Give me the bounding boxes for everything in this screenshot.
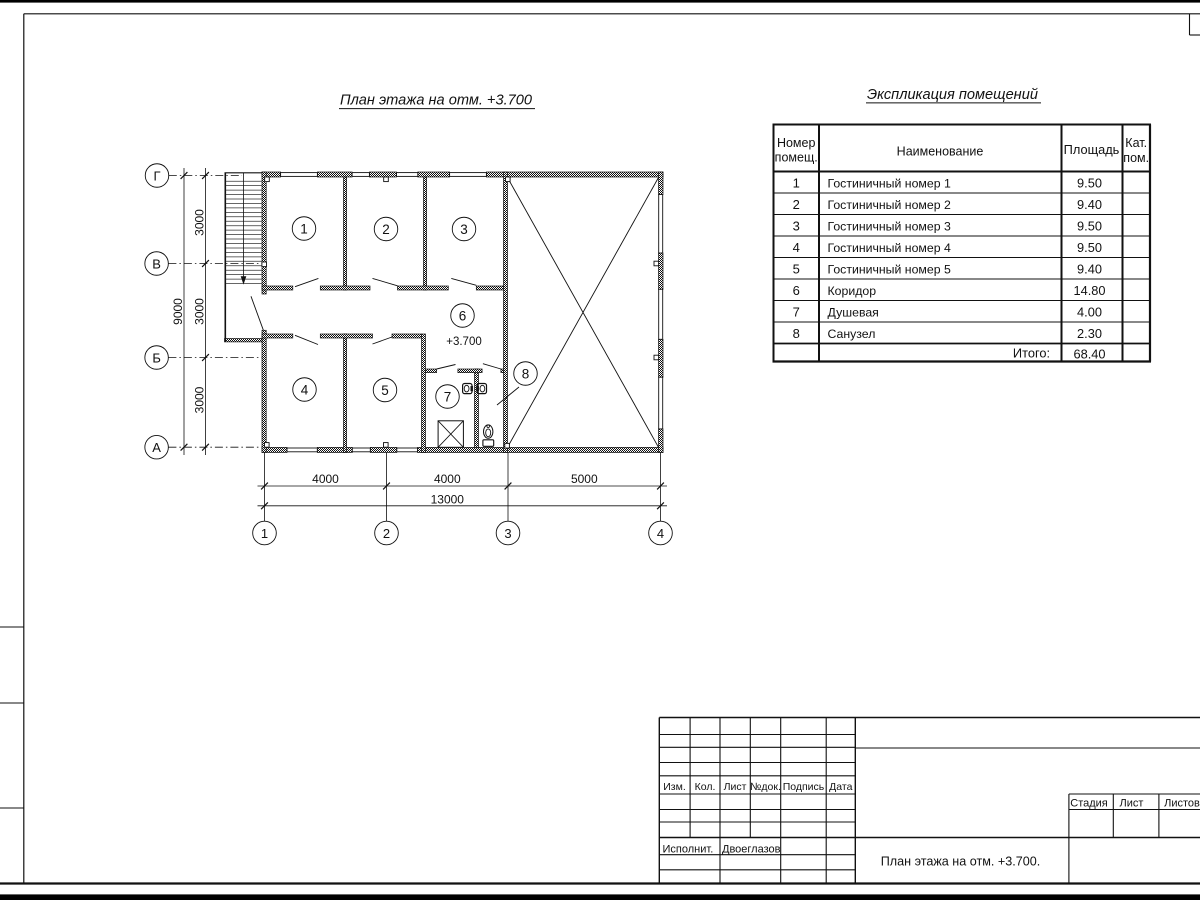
svg-text:Наименование: Наименование xyxy=(897,145,984,159)
svg-text:6: 6 xyxy=(459,308,467,323)
svg-text:Кат.: Кат. xyxy=(1125,136,1147,150)
svg-text:Стадия: Стадия xyxy=(1070,798,1108,810)
svg-text:4: 4 xyxy=(657,526,664,541)
svg-text:5: 5 xyxy=(381,383,389,398)
svg-text:№док.: №док. xyxy=(750,781,781,793)
svg-text:Экспликация помещений: Экспликация помещений xyxy=(867,87,1038,103)
svg-text:9.50: 9.50 xyxy=(1077,219,1102,234)
svg-text:4000: 4000 xyxy=(312,472,339,486)
svg-text:68.40: 68.40 xyxy=(1073,347,1105,362)
svg-text:Дата: Дата xyxy=(829,781,852,793)
svg-text:Исполнит.: Исполнит. xyxy=(663,844,714,856)
svg-text:1: 1 xyxy=(300,221,308,236)
svg-text:9.50: 9.50 xyxy=(1077,240,1102,255)
svg-text:Санузел: Санузел xyxy=(828,327,876,341)
svg-text:Гостиничный номер 5: Гостиничный номер 5 xyxy=(828,263,951,277)
svg-text:План этажа на отм. +3.700.: План этажа на отм. +3.700. xyxy=(881,855,1041,869)
svg-text:В: В xyxy=(152,256,161,271)
svg-text:План этажа на отм. +3.700: План этажа на отм. +3.700 xyxy=(340,92,532,108)
svg-text:9.40: 9.40 xyxy=(1077,197,1102,212)
svg-text:2.30: 2.30 xyxy=(1077,326,1102,341)
svg-text:Итого:: Итого: xyxy=(1013,346,1050,361)
svg-text:+3.700: +3.700 xyxy=(446,336,482,348)
svg-text:Листов: Листов xyxy=(1164,798,1200,810)
svg-text:7: 7 xyxy=(444,389,452,404)
svg-text:8: 8 xyxy=(793,326,800,341)
svg-text:Двоеглазов: Двоеглазов xyxy=(722,844,781,856)
svg-text:3: 3 xyxy=(793,219,800,234)
svg-text:Изм.: Изм. xyxy=(663,781,686,793)
svg-text:помещ.: помещ. xyxy=(775,151,818,165)
svg-text:Душевая: Душевая xyxy=(828,306,879,320)
svg-text:Коридор: Коридор xyxy=(828,284,877,298)
svg-text:4000: 4000 xyxy=(434,472,461,486)
svg-text:9000: 9000 xyxy=(171,298,185,325)
svg-text:8: 8 xyxy=(522,366,530,381)
svg-text:Лист: Лист xyxy=(724,781,747,793)
svg-text:3000: 3000 xyxy=(193,386,207,413)
svg-text:Номер: Номер xyxy=(777,136,816,150)
svg-text:Подпись: Подпись xyxy=(783,781,825,793)
svg-text:Гостиничный номер 1: Гостиничный номер 1 xyxy=(828,177,951,191)
svg-text:Б: Б xyxy=(152,350,161,365)
svg-text:Гостиничный номер 3: Гостиничный номер 3 xyxy=(828,220,951,234)
svg-text:4.00: 4.00 xyxy=(1077,305,1102,320)
svg-text:5: 5 xyxy=(793,262,800,277)
svg-text:3: 3 xyxy=(504,526,511,541)
svg-text:14.80: 14.80 xyxy=(1073,283,1105,298)
svg-text:4: 4 xyxy=(793,240,800,255)
svg-text:1: 1 xyxy=(261,526,268,541)
svg-text:9.50: 9.50 xyxy=(1077,176,1102,191)
svg-text:Кол.: Кол. xyxy=(695,781,716,793)
svg-text:7: 7 xyxy=(793,305,800,320)
svg-text:6: 6 xyxy=(793,283,800,298)
svg-text:3000: 3000 xyxy=(193,209,207,236)
svg-text:2: 2 xyxy=(382,222,390,237)
svg-text:Гостиничный номер 4: Гостиничный номер 4 xyxy=(828,241,951,255)
svg-text:5000: 5000 xyxy=(571,472,598,486)
svg-text:Лист: Лист xyxy=(1120,798,1144,810)
svg-text:Г: Г xyxy=(153,168,160,183)
svg-text:9.40: 9.40 xyxy=(1077,262,1102,277)
svg-text:1: 1 xyxy=(793,176,800,191)
svg-text:4: 4 xyxy=(301,382,309,397)
svg-text:Площадь: Площадь xyxy=(1064,142,1120,157)
svg-text:2: 2 xyxy=(793,197,800,212)
svg-text:А: А xyxy=(152,440,161,455)
svg-text:2: 2 xyxy=(383,526,390,541)
svg-text:13000: 13000 xyxy=(431,492,465,506)
svg-text:Гостиничный номер 2: Гостиничный номер 2 xyxy=(828,198,951,212)
svg-text:3: 3 xyxy=(460,222,468,237)
svg-text:пом.: пом. xyxy=(1123,151,1149,165)
svg-text:3000: 3000 xyxy=(193,298,207,325)
